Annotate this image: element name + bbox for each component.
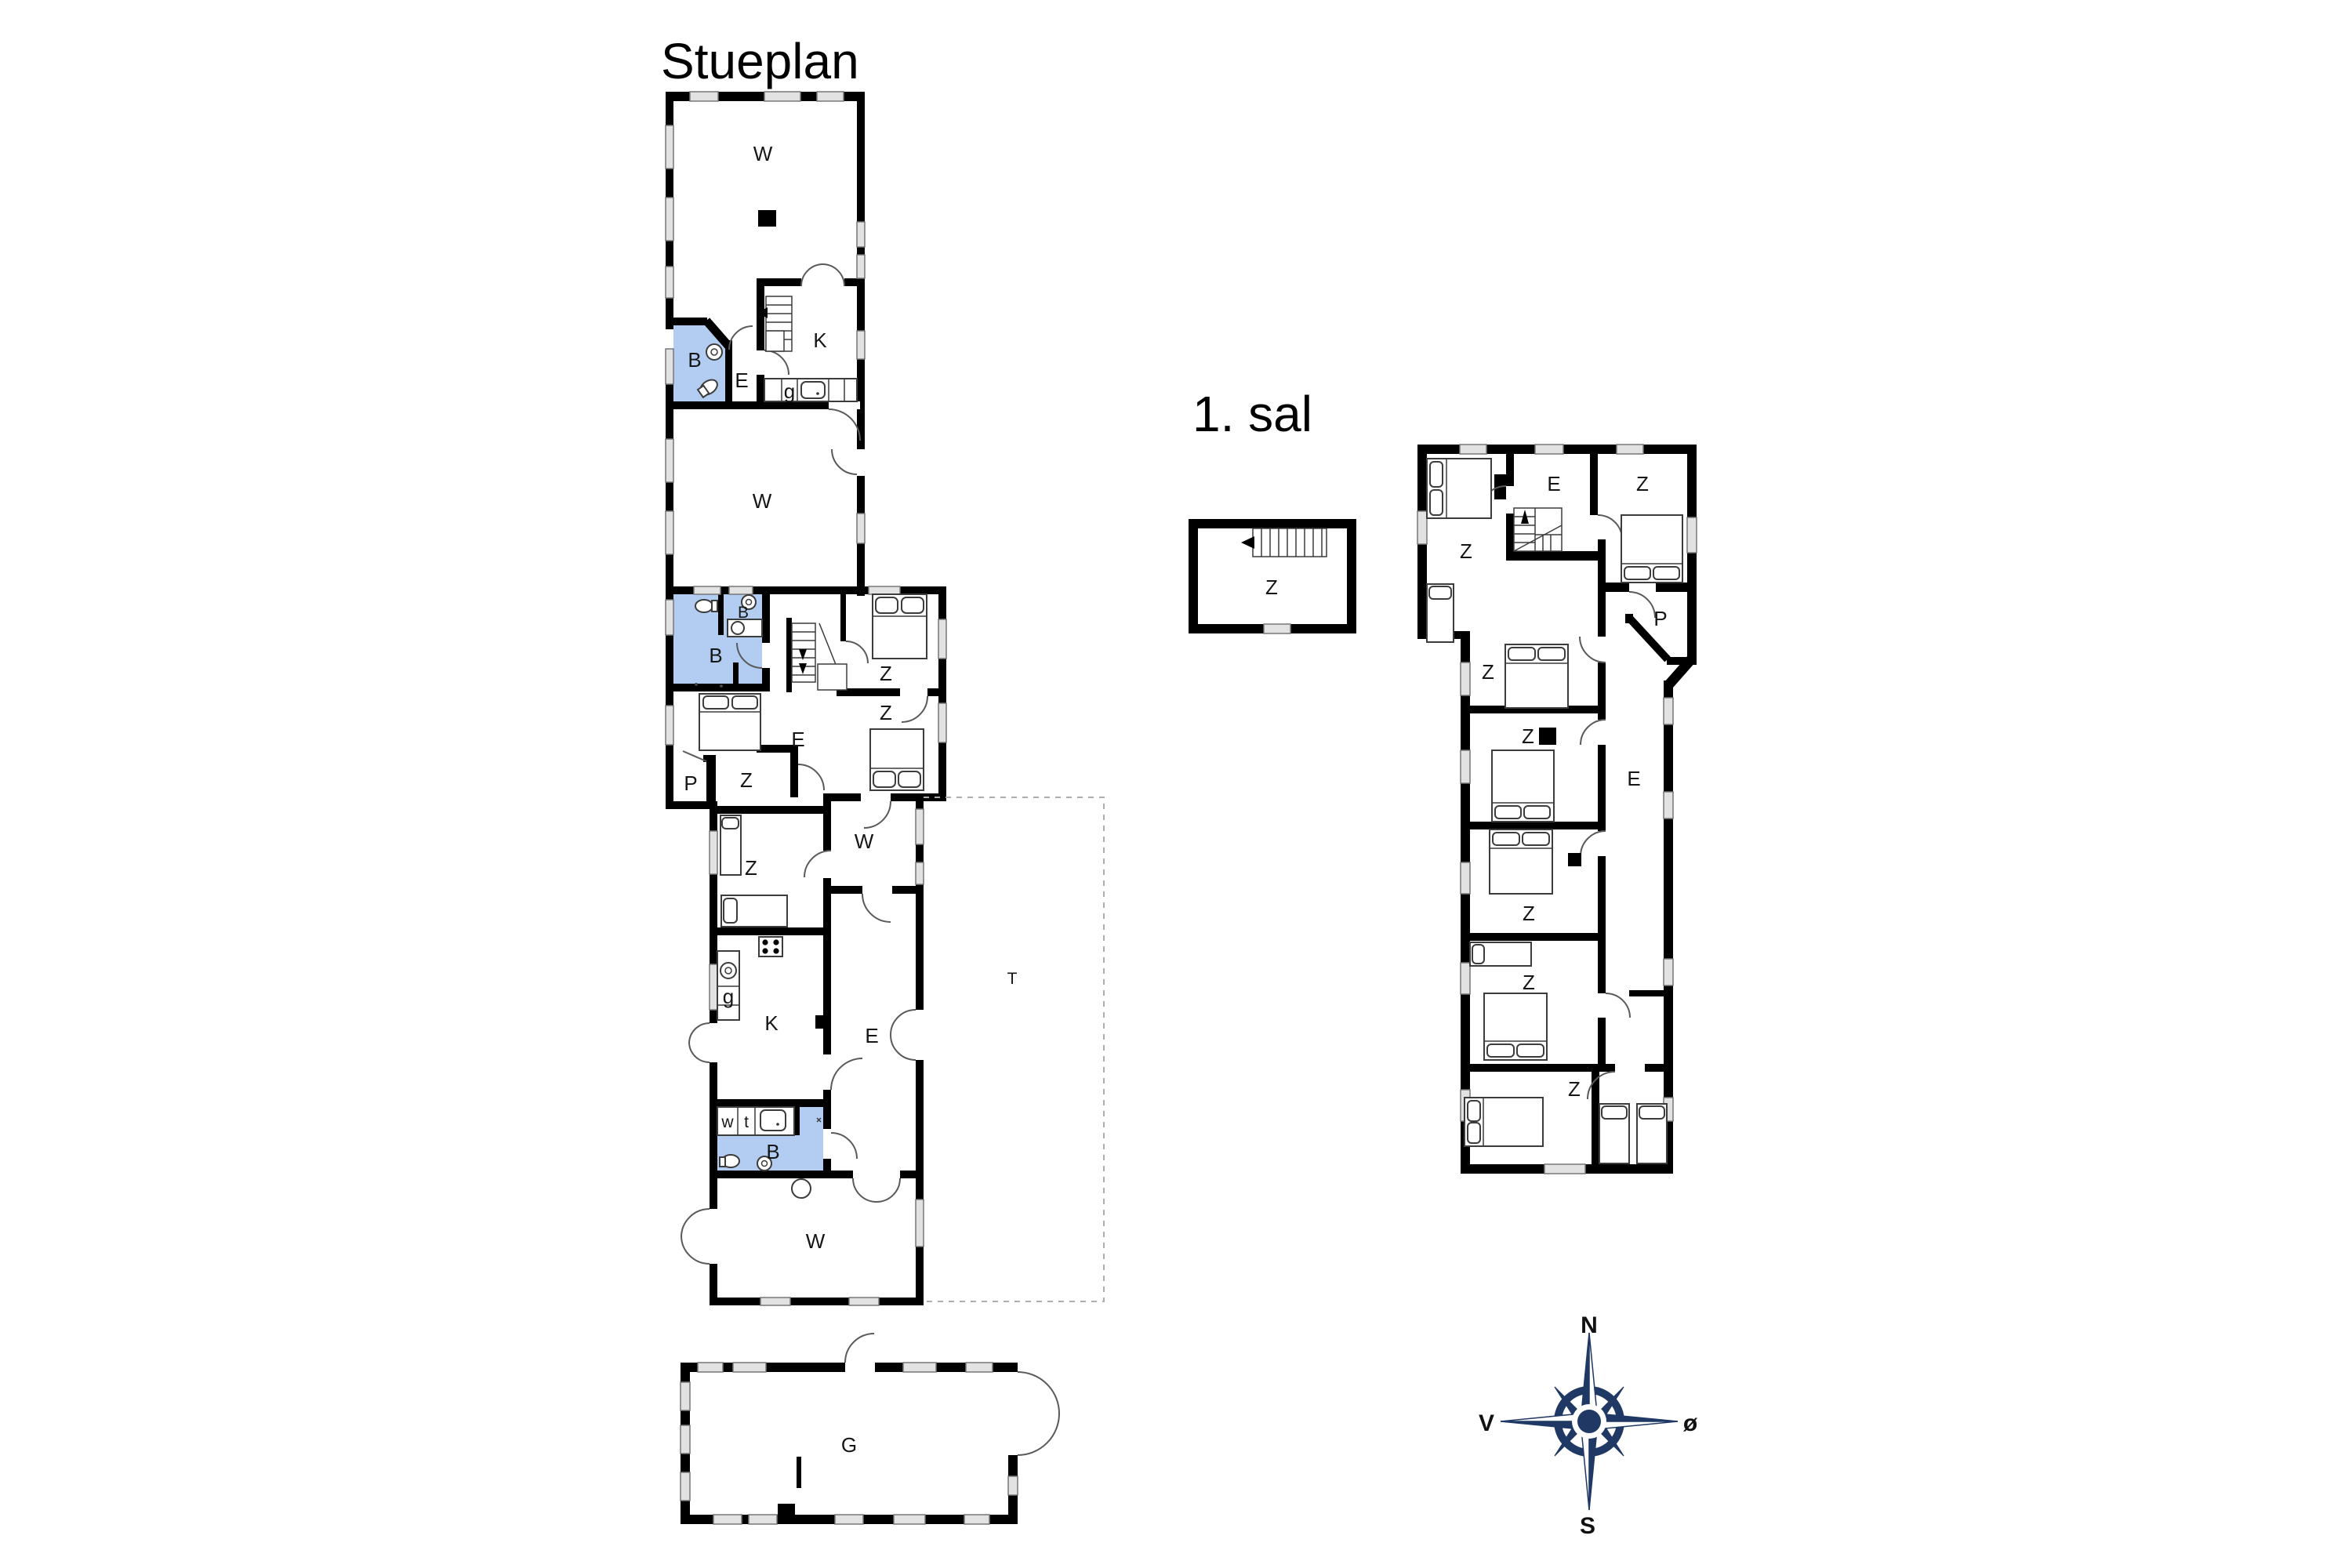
stove-square-icon xyxy=(1539,728,1556,745)
washbasin-icon xyxy=(706,344,722,360)
label-pantry2: g xyxy=(723,985,734,1008)
toilet2-icon xyxy=(695,600,717,612)
garage xyxy=(681,1334,1059,1524)
toilet3-icon xyxy=(720,1155,739,1167)
first-floor-title: 1. sal xyxy=(1192,386,1312,442)
label-utility-w: w xyxy=(720,1113,734,1131)
label-terrace: T xyxy=(1007,970,1018,988)
label-living2: W xyxy=(753,489,772,513)
label-f-bed5: Z xyxy=(1523,971,1535,994)
label-f-closet: P xyxy=(1653,607,1667,630)
annex-stairs-icon xyxy=(1253,528,1327,557)
label-f-bed-ne: Z xyxy=(1636,472,1649,495)
floor-plan-drawing: Stueplan 1. sal xyxy=(0,0,2352,1568)
bed-single-v xyxy=(720,815,741,875)
label-f-bed6: Z xyxy=(1568,1077,1581,1101)
stairs-up-icon xyxy=(766,296,792,351)
terrace-outline xyxy=(924,797,1104,1301)
laundry-sink-icon xyxy=(760,1110,786,1131)
label-bath2: B xyxy=(709,644,722,667)
label-hall-big: E xyxy=(865,1024,878,1047)
label-living1: W xyxy=(753,142,773,165)
label-pantry1: g xyxy=(784,379,795,403)
label-bath3: B xyxy=(766,1140,779,1163)
fireplace-icon xyxy=(758,210,776,227)
label-entry1: E xyxy=(735,368,748,392)
label-kitchen1: K xyxy=(813,328,827,352)
bed-double-e xyxy=(870,729,924,790)
label-f-bed2: Z xyxy=(1482,660,1494,684)
label-hall-low: W xyxy=(855,829,874,853)
label-bath1: B xyxy=(688,348,701,372)
annex-stairs-arrow-icon xyxy=(1241,536,1254,549)
label-bed-ne: Z xyxy=(880,662,892,685)
sink-icon xyxy=(801,382,825,398)
compass-north-label: N xyxy=(1581,1312,1598,1338)
stairs-down-icon xyxy=(792,623,847,690)
ground-floor-title: Stueplan xyxy=(661,33,859,89)
label-bed-mid: Z xyxy=(740,768,753,792)
label-annex-room: Z xyxy=(1265,575,1278,599)
label-kitchen2: K xyxy=(764,1011,779,1035)
bed-double-ne xyxy=(873,594,927,659)
label-f-hall-right: E xyxy=(1627,767,1640,790)
label-bed-e: Z xyxy=(880,701,892,724)
kitchen1-counter xyxy=(764,379,857,401)
label-closet: P xyxy=(684,771,697,795)
stove-square2-icon xyxy=(1568,853,1581,866)
label-utility-t: t xyxy=(744,1113,749,1131)
first-floor-stairs-icon xyxy=(1514,508,1562,551)
bed-single-h xyxy=(721,895,787,927)
compass-west-label: V xyxy=(1479,1410,1494,1436)
compass-east-label: ø xyxy=(1683,1410,1698,1436)
bed-mid-left xyxy=(699,694,760,750)
floor-plan-page: Stueplan 1. sal xyxy=(0,0,2352,1568)
stove-icon xyxy=(759,937,782,956)
label-f-bed-nw: Z xyxy=(1460,539,1472,563)
compass-south-label: S xyxy=(1580,1513,1595,1539)
label-f-hall-top: E xyxy=(1547,472,1560,495)
kitchen-sink-icon xyxy=(720,963,736,978)
table-icon xyxy=(792,1179,811,1198)
label-hall-mid: E xyxy=(791,728,804,751)
label-bath2-small: B xyxy=(738,604,749,622)
compass-rose-icon xyxy=(1501,1333,1678,1510)
washbasin3-icon xyxy=(731,622,744,634)
label-f-bed4: Z xyxy=(1523,902,1535,925)
label-living3: W xyxy=(806,1229,826,1253)
label-f-bed3: Z xyxy=(1522,724,1534,748)
label-bed-low: Z xyxy=(745,856,757,880)
label-garage: G xyxy=(841,1433,857,1457)
